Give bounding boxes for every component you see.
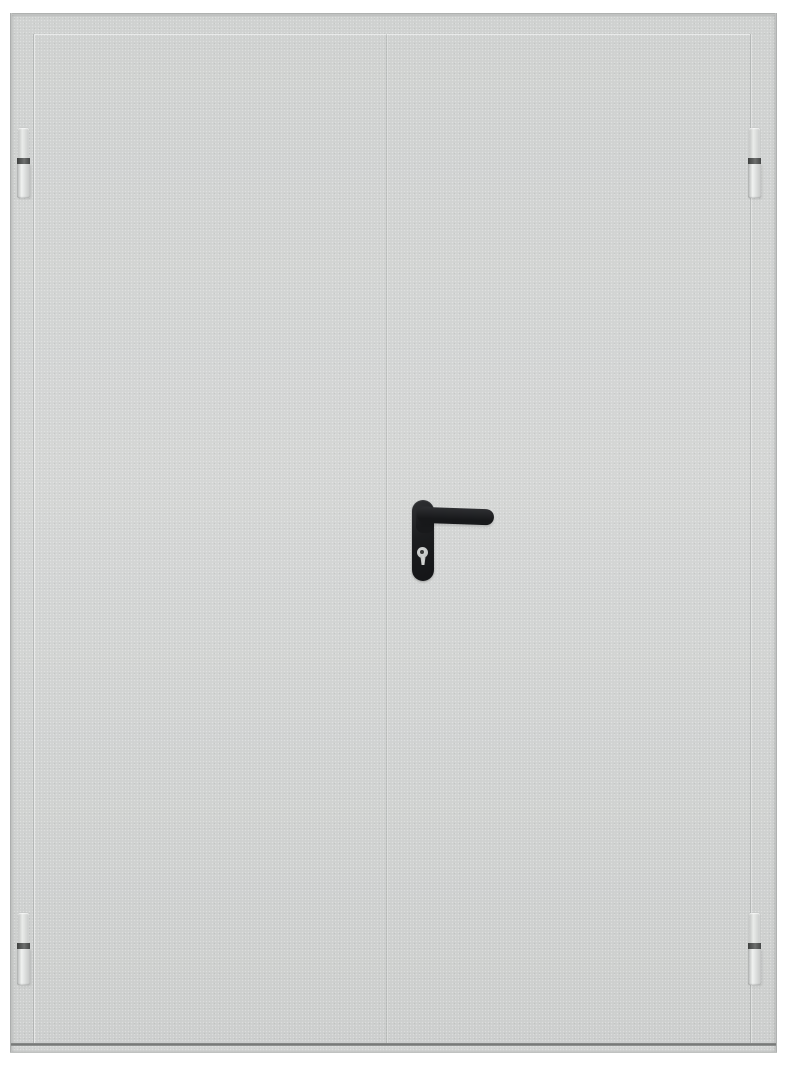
hinge-lower-knuckle xyxy=(17,949,30,985)
hinge-left-bottom xyxy=(16,913,32,985)
hinge-upper-knuckle xyxy=(18,128,29,159)
frame-top-edge xyxy=(10,13,777,15)
threshold xyxy=(12,1046,775,1052)
door-unit xyxy=(10,13,777,1053)
center-seam-highlight xyxy=(387,34,388,1044)
product-photo xyxy=(0,0,788,1068)
frame-bottom-edge xyxy=(10,1052,777,1053)
frame-left-edge xyxy=(10,13,12,1053)
hinge-right-top xyxy=(747,128,763,198)
frame-right-edge xyxy=(775,13,777,1053)
hinge-lower-knuckle xyxy=(748,164,761,198)
hinge-lower-knuckle xyxy=(17,164,30,198)
keyhole-center-dot xyxy=(420,550,424,554)
hinge-upper-knuckle xyxy=(749,128,760,159)
hinge-lower-knuckle xyxy=(748,949,761,985)
hinge-upper-knuckle xyxy=(18,913,29,944)
handle-lever xyxy=(417,507,495,526)
hinge-upper-knuckle xyxy=(749,913,760,944)
door-leaf-left xyxy=(34,35,386,1043)
hinge-right-bottom xyxy=(747,913,763,985)
door-leaf-right xyxy=(387,35,750,1043)
hinge-left-top xyxy=(16,128,32,198)
